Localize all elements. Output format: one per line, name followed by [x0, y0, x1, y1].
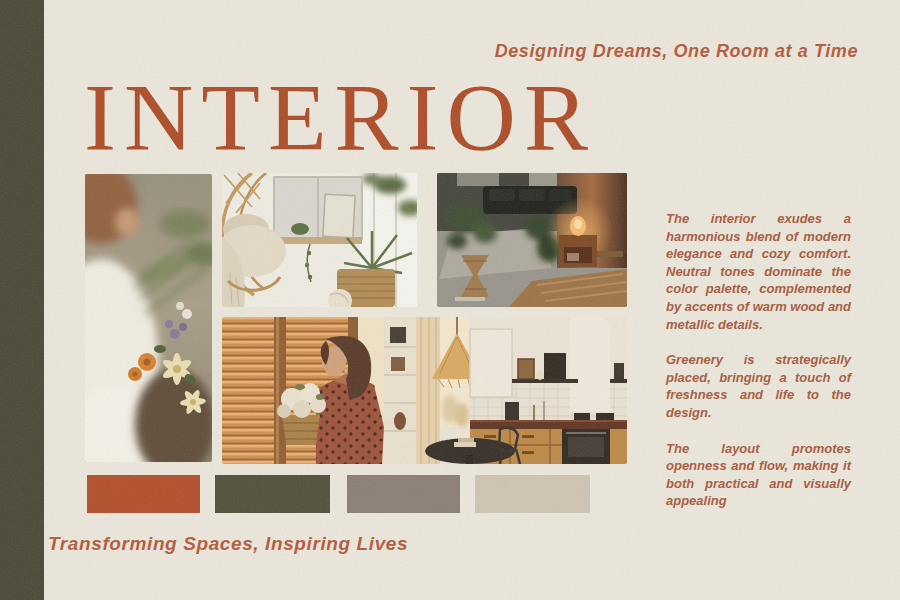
sill-plant: [291, 223, 309, 235]
description-paragraph: Greenery is strategically placed, bringi…: [666, 351, 851, 421]
photo-sunlit-kitchen: [222, 317, 627, 464]
photo-moody-lounge: [437, 173, 627, 307]
description-paragraph: The layout promotes openness and flow, m…: [666, 440, 851, 510]
moodboard-poster: Designing Dreams, One Room at a Time INT…: [0, 0, 900, 600]
photo-boho-living-room: [222, 173, 417, 307]
papers: [455, 297, 485, 301]
moody-lounge-illustration: [437, 173, 627, 307]
palette-swatch-beige: [475, 475, 590, 513]
interior-window: [270, 177, 362, 244]
bottom-tagline: Transforming Spaces, Inspiring Lives: [48, 533, 408, 555]
florist-illustration: [85, 174, 212, 462]
crate-side-table: [559, 235, 597, 267]
top-tagline: Designing Dreams, One Room at a Time: [495, 41, 858, 62]
palette-swatch-terracotta: [87, 475, 200, 513]
leaning-picture-frame: [323, 194, 355, 238]
low-bench: [597, 251, 623, 257]
palette-swatch-dark-olive: [215, 475, 330, 513]
photo-florist-bouquet: [85, 174, 212, 462]
left-accent-stripe: [0, 0, 44, 600]
description-column: The interior exudes a harmonious blend o…: [666, 210, 851, 528]
kitchen-illustration: [222, 317, 627, 464]
page-title: INTERIOR: [84, 70, 596, 166]
wicker-basket: [328, 269, 395, 307]
boho-room-illustration: [222, 173, 417, 307]
description-paragraph: The interior exudes a harmonious blend o…: [666, 210, 851, 333]
palette-swatch-taupe: [347, 475, 460, 513]
